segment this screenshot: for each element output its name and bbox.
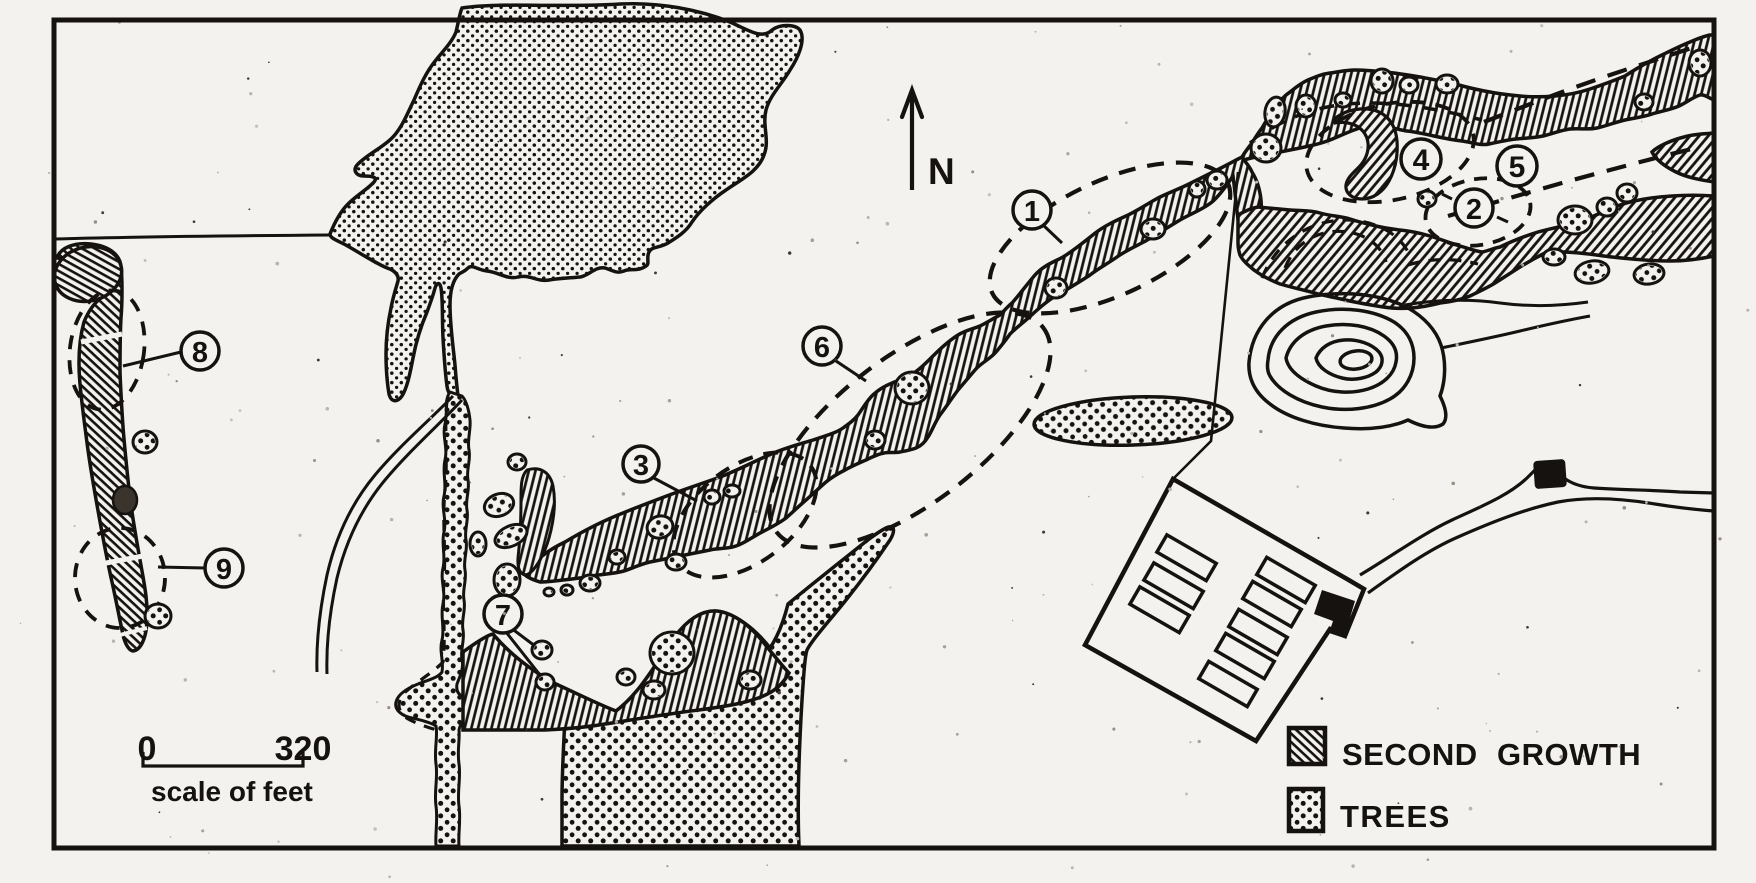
svg-text:3: 3 <box>633 450 649 482</box>
svg-text:7: 7 <box>495 600 511 632</box>
svg-text:SECOND: SECOND <box>1342 737 1478 772</box>
svg-text:9: 9 <box>216 554 232 586</box>
svg-text:TREES: TREES <box>1340 799 1451 834</box>
svg-text:4: 4 <box>1413 144 1430 177</box>
svg-text:N: N <box>928 151 955 192</box>
svg-text:5: 5 <box>1509 151 1526 184</box>
svg-text:GROWTH: GROWTH <box>1497 737 1641 772</box>
svg-text:2: 2 <box>1466 194 1482 226</box>
svg-text:0: 0 <box>138 730 157 768</box>
svg-text:scale of feet: scale of feet <box>151 776 313 807</box>
svg-text:1: 1 <box>1024 196 1040 228</box>
svg-text:320: 320 <box>275 730 332 768</box>
svg-text:8: 8 <box>192 337 208 369</box>
svg-text:6: 6 <box>814 332 830 364</box>
